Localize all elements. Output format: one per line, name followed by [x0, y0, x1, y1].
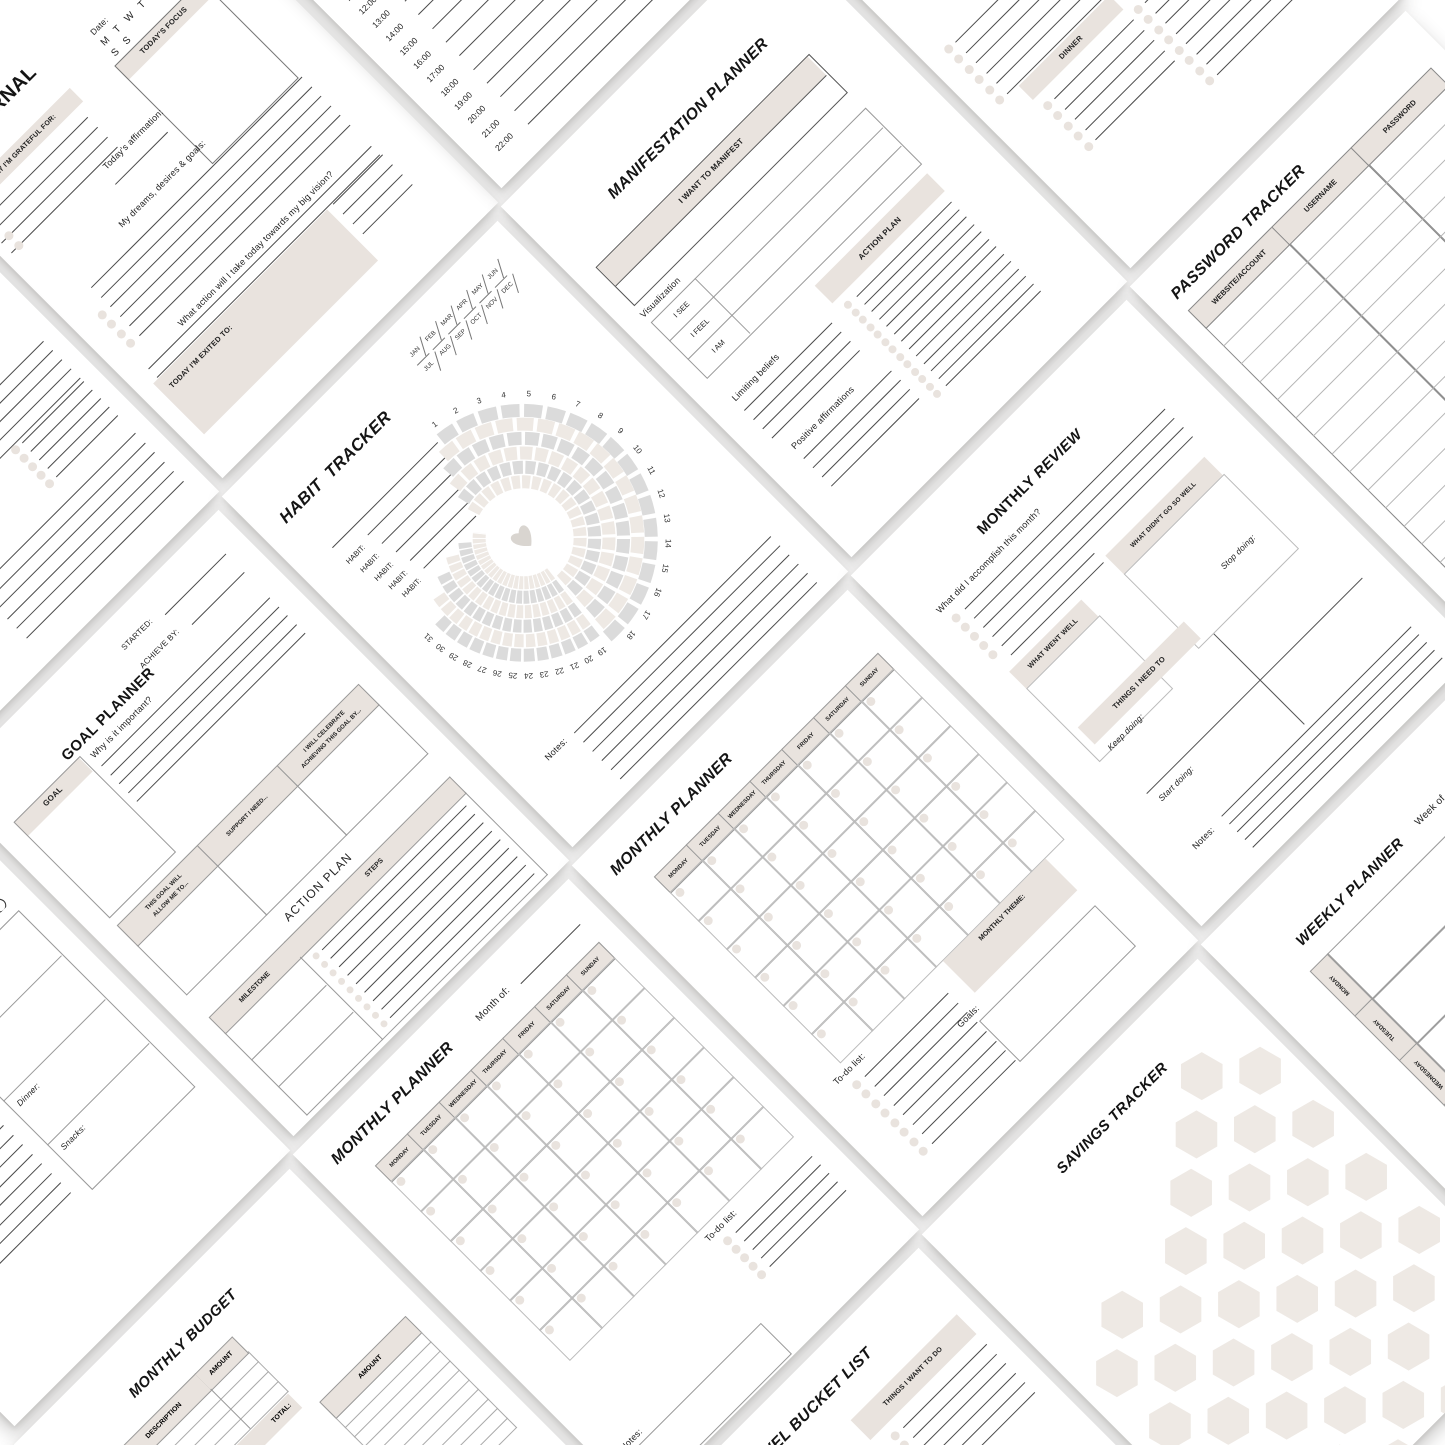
svg-text:15: 15: [659, 563, 670, 574]
svg-text:29: 29: [446, 650, 459, 663]
svg-text:22: 22: [553, 665, 564, 676]
svg-text:18: 18: [624, 628, 637, 641]
svg-text:6: 6: [550, 392, 557, 402]
svg-text:17: 17: [639, 608, 652, 621]
svg-text:7: 7: [574, 399, 582, 409]
svg-text:24: 24: [523, 671, 533, 680]
svg-text:28: 28: [461, 657, 473, 669]
svg-text:10: 10: [631, 443, 644, 456]
svg-text:9: 9: [615, 426, 625, 436]
svg-text:30: 30: [433, 641, 446, 654]
svg-text:13: 13: [661, 513, 671, 524]
svg-text:26: 26: [491, 667, 502, 678]
svg-text:23: 23: [538, 669, 549, 679]
svg-text:21: 21: [568, 660, 580, 672]
svg-text:11: 11: [645, 464, 657, 476]
svg-text:12: 12: [655, 488, 666, 500]
svg-text:20: 20: [582, 653, 595, 665]
svg-text:25: 25: [507, 670, 517, 680]
svg-text:5: 5: [526, 389, 531, 398]
svg-text:2: 2: [451, 405, 460, 415]
svg-text:27: 27: [475, 663, 487, 674]
svg-text:4: 4: [500, 390, 506, 400]
svg-text:31: 31: [421, 630, 434, 643]
svg-text:8: 8: [596, 410, 605, 420]
svg-text:14: 14: [663, 538, 672, 548]
svg-text:1: 1: [430, 419, 439, 429]
svg-text:3: 3: [475, 395, 483, 405]
svg-text:16: 16: [651, 586, 663, 598]
svg-text:19: 19: [595, 644, 608, 657]
